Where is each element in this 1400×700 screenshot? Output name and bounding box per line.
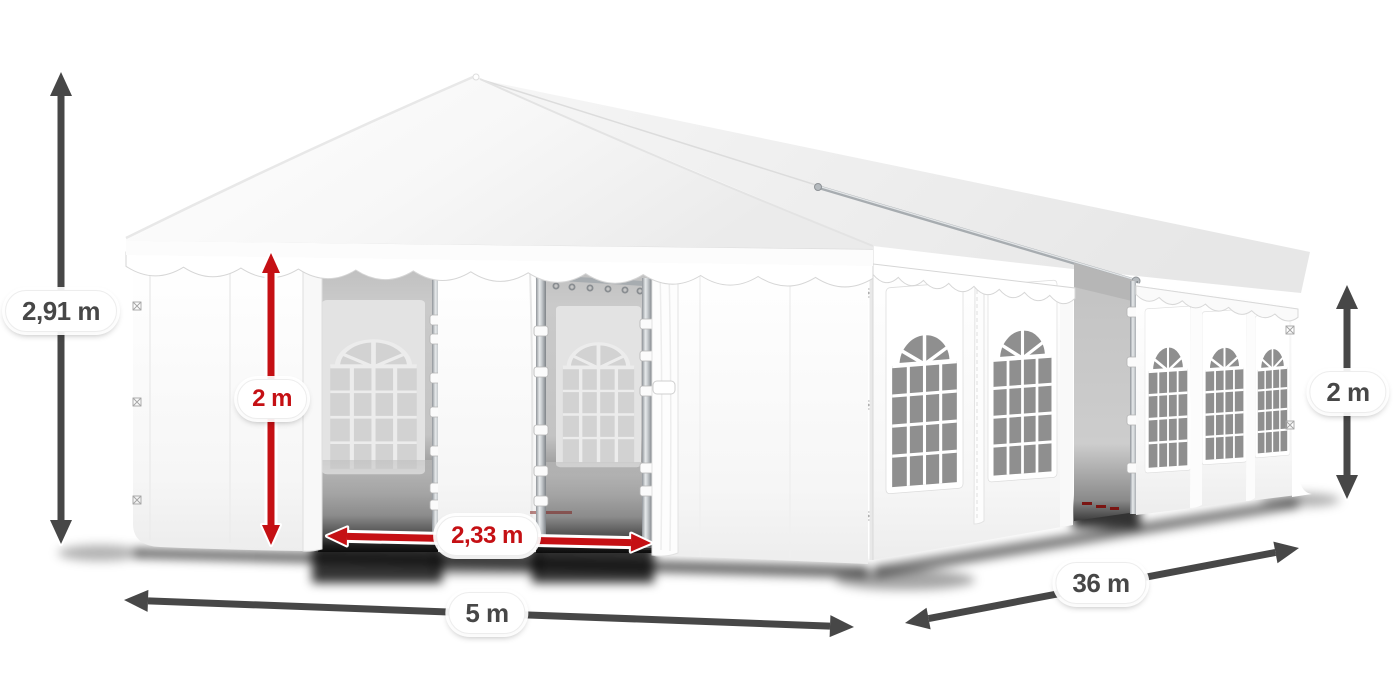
side-wall-module-1 xyxy=(865,266,1073,560)
side-window xyxy=(886,282,963,494)
frame-pole xyxy=(642,278,652,548)
ridge-cap xyxy=(473,74,479,80)
side-window xyxy=(1145,306,1191,473)
side-window xyxy=(1255,313,1290,458)
door-curtain xyxy=(652,262,678,556)
front-panel-middle xyxy=(438,260,536,554)
interior-window xyxy=(556,306,641,467)
interior-window xyxy=(322,300,425,474)
dimension-label-side-wall-height: 2 m xyxy=(1309,371,1386,413)
dimension-label-front-width: 5 m xyxy=(448,592,525,634)
front-panel-right xyxy=(652,262,868,564)
curtain-tie-strap xyxy=(653,381,675,394)
dimension-label-total-height: 2,91 m xyxy=(5,290,117,332)
dimension-label-side-length: 36 m xyxy=(1055,562,1146,604)
side-gap-opening xyxy=(1074,263,1141,521)
side-window xyxy=(988,280,1057,482)
tent-illustration xyxy=(0,0,1400,700)
dimension-label-front-wall-height: 2 m xyxy=(237,379,307,419)
side-window xyxy=(1202,309,1247,465)
tent-dimension-diagram: 2,91 m 2 m 2,33 m 5 m 36 m 2 m xyxy=(0,0,1400,700)
dimension-label-entrance-width: 2,33 m xyxy=(436,516,538,556)
